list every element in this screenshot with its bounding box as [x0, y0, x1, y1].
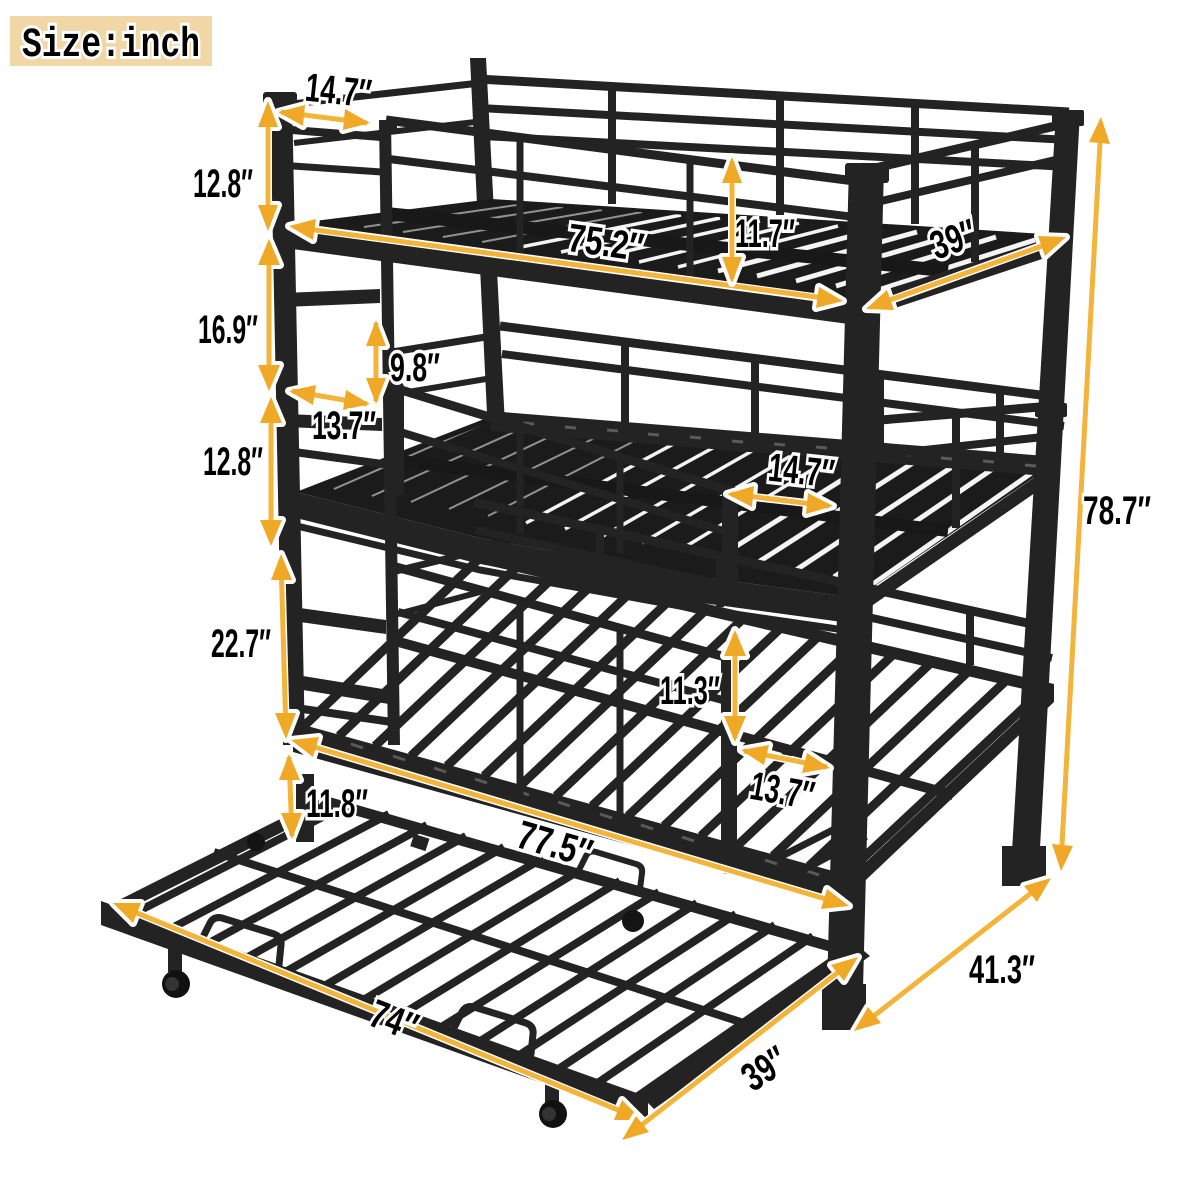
svg-text:9.8″: 9.8″: [390, 346, 440, 390]
svg-text:16.9″: 16.9″: [198, 308, 258, 352]
svg-text:11.8″: 11.8″: [306, 782, 368, 826]
svg-text:41.3″: 41.3″: [969, 948, 1035, 992]
svg-text:Size:inch: Size:inch: [22, 21, 200, 69]
svg-text:13.7″: 13.7″: [312, 404, 376, 448]
svg-text:11.7″: 11.7″: [735, 212, 795, 256]
svg-text:78.7″: 78.7″: [1083, 489, 1151, 533]
svg-text:14.7″: 14.7″: [766, 446, 836, 497]
svg-text:12.8″: 12.8″: [203, 440, 263, 484]
svg-text:12.8″: 12.8″: [193, 162, 253, 206]
svg-text:22.7″: 22.7″: [211, 622, 271, 666]
svg-text:14.7″: 14.7″: [303, 66, 373, 117]
svg-text:11.3″: 11.3″: [660, 669, 720, 713]
